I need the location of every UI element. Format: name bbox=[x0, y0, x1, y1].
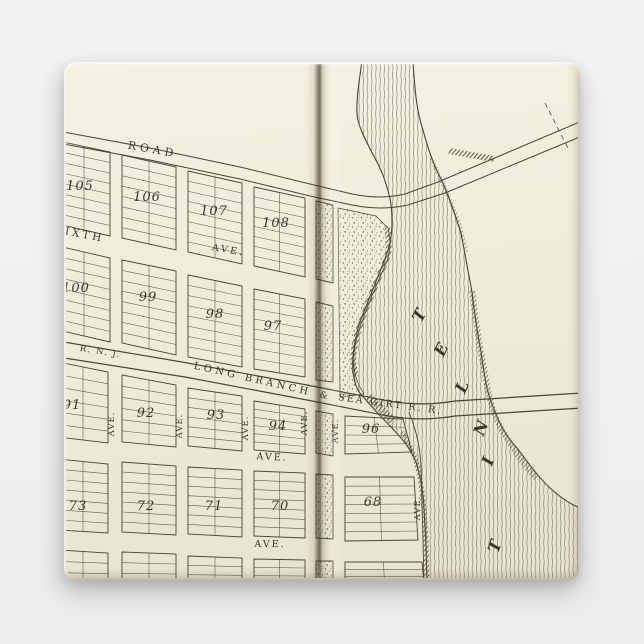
lot-line bbox=[384, 562, 385, 584]
block-number-92: 92 bbox=[137, 406, 156, 421]
product-photo-scene: 1051061071081009998979192939496737271706… bbox=[0, 0, 644, 644]
block-number-100: 100 bbox=[62, 281, 90, 296]
block-number-107: 107 bbox=[200, 204, 228, 219]
block-number-97: 97 bbox=[264, 319, 283, 334]
block-number-99: 99 bbox=[139, 290, 158, 305]
block-number-93: 93 bbox=[207, 408, 226, 423]
fold-highlight bbox=[331, 62, 340, 580]
block-92: 92 bbox=[122, 375, 176, 447]
block-70b bbox=[254, 559, 305, 584]
block-number-73: 73 bbox=[69, 499, 88, 514]
vertical-avenue-label: AVE. bbox=[107, 412, 117, 438]
block-68b bbox=[345, 562, 424, 584]
railroad-left-label: R. N. J. bbox=[79, 344, 122, 360]
block-number-108: 108 bbox=[262, 216, 290, 231]
block-98: 98 bbox=[188, 275, 242, 367]
embankment-hatch bbox=[449, 151, 494, 159]
block-108: 108 bbox=[254, 187, 305, 277]
block-100: 100 bbox=[58, 246, 110, 342]
block-number-71: 71 bbox=[205, 499, 224, 514]
block-70: 70 bbox=[254, 471, 305, 538]
block-106: 106 bbox=[122, 155, 176, 250]
block-93: 93 bbox=[188, 388, 242, 451]
block-number-70: 70 bbox=[271, 499, 290, 514]
block-73b bbox=[58, 550, 108, 584]
plat-map: 1051061071081009998979192939496737271706… bbox=[0, 0, 644, 644]
block-68: 68 bbox=[345, 477, 418, 541]
sixth-ave-label: AVE. bbox=[210, 242, 246, 259]
block-97: 97 bbox=[254, 289, 305, 377]
block-number-68: 68 bbox=[364, 495, 383, 510]
block-number-96: 96 bbox=[362, 422, 381, 437]
block-72b bbox=[122, 552, 176, 584]
block-72: 72 bbox=[122, 462, 176, 535]
block-number-72: 72 bbox=[137, 499, 156, 514]
block-91: 91 bbox=[58, 362, 108, 443]
block-number-105: 105 bbox=[66, 179, 94, 194]
block-73: 73 bbox=[58, 459, 108, 533]
bottom-avenue-label: AVE. bbox=[253, 539, 285, 551]
block-outline bbox=[345, 562, 424, 584]
vertical-avenue-label: AVE. bbox=[413, 496, 423, 522]
block-71b bbox=[188, 556, 242, 584]
vertical-avenue-label: AVE. bbox=[241, 416, 251, 442]
railroad-label-1: LONG BRANCH bbox=[193, 361, 313, 399]
block-94: 94 bbox=[254, 401, 305, 454]
block-number-98: 98 bbox=[206, 307, 225, 322]
block-105: 105 bbox=[58, 141, 110, 236]
block-71: 71 bbox=[188, 467, 242, 537]
fold-crease-shadow bbox=[306, 62, 332, 580]
block-number-106: 106 bbox=[133, 190, 161, 205]
block-99: 99 bbox=[122, 260, 176, 355]
block-number-91: 91 bbox=[63, 398, 82, 413]
sixth-street-label: IXTH bbox=[64, 225, 105, 244]
boundary-dashed-line bbox=[545, 103, 568, 148]
river-water bbox=[353, 60, 580, 584]
inlet-river bbox=[353, 60, 580, 584]
fold-crease bbox=[306, 62, 340, 580]
mid-avenue-label: AVE. bbox=[255, 451, 288, 464]
vertical-avenue-label: AVE. bbox=[175, 414, 185, 440]
block-number-94: 94 bbox=[269, 419, 288, 434]
